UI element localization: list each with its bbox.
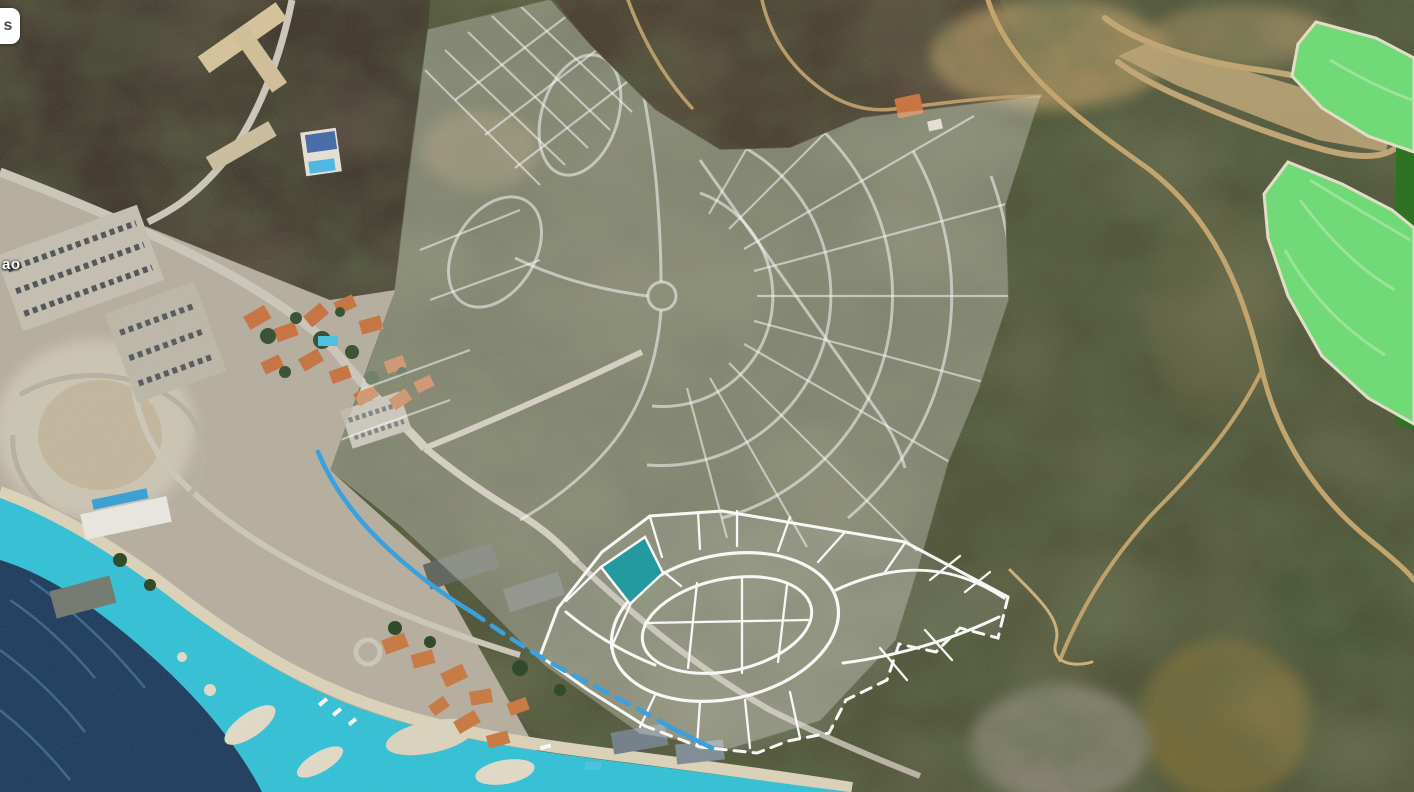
place-label: ao (2, 256, 21, 273)
map-control-button-label: s (4, 17, 13, 35)
satellite-map-canvas (0, 0, 1414, 792)
satellite-grain-texture (0, 0, 1414, 792)
map-control-button[interactable]: s (0, 8, 20, 44)
map-viewport[interactable]: s ao (0, 0, 1414, 792)
